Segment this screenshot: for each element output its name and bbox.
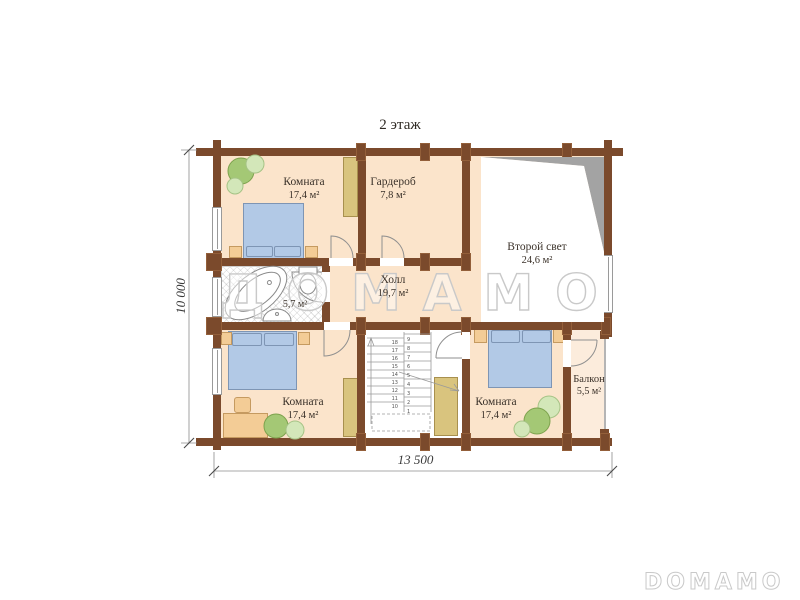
room-area: 17,4 м² (436, 409, 556, 422)
nightstand (229, 246, 242, 258)
wall-bottom (196, 438, 612, 446)
log-stub (420, 143, 430, 161)
room-area: 5,7 м² (260, 298, 330, 311)
door-opening (563, 340, 571, 367)
floor-plan-canvas: 2 этаж (0, 0, 800, 600)
room-name: Комната (436, 396, 556, 409)
nightstand (298, 332, 310, 345)
room-name: Второй свет (477, 241, 597, 254)
door-opening (462, 332, 470, 359)
pillow (522, 330, 551, 343)
door-opening (324, 322, 350, 330)
room-label-hall: Холл 19,7 м² (333, 274, 453, 300)
wall-bedroom-wardrobe (358, 156, 366, 258)
log-stub (356, 143, 366, 161)
wall-top (196, 148, 623, 156)
log-stub (562, 143, 572, 161)
page-title: 2 этаж (340, 117, 460, 134)
pillow (274, 246, 301, 257)
room-name: Балкон (557, 374, 621, 386)
room-label-bathroom: 5,7 м² (260, 298, 330, 311)
nightstand (221, 332, 232, 345)
wall-middle-lower (213, 322, 612, 330)
pillow (264, 333, 294, 346)
room-area: 17,4 м² (243, 409, 363, 422)
pillow (246, 246, 273, 257)
room-area: 24,6 м² (477, 254, 597, 267)
room-area: 19,7 м² (333, 287, 453, 300)
room-label-balcony: Балкон 5,5 м² (557, 374, 621, 398)
window-pane (217, 350, 218, 393)
log-stub (600, 433, 610, 451)
log-stub (420, 433, 430, 451)
log-stub (562, 433, 572, 451)
window-pane (217, 279, 218, 315)
window-pane (217, 209, 218, 249)
room-area: 5,5 м² (557, 386, 621, 398)
wall-wardrobe-secondlight (462, 156, 470, 258)
window (212, 207, 222, 251)
room-label-wardrobe: Гардероб 7,8 м² (333, 176, 453, 202)
room-area: 7,8 м² (333, 189, 453, 202)
room-name: Комната (243, 396, 363, 409)
watermark-corner: DOMAMO (644, 570, 784, 595)
room-label-bottom-left: Комната 17,4 м² (243, 396, 363, 422)
log-stub (461, 143, 471, 161)
nightstand (305, 246, 318, 258)
room-label-bottom-middle: Комната 17,4 м² (436, 396, 556, 422)
nightstand (474, 329, 487, 343)
window (212, 348, 222, 395)
log-stub (461, 433, 471, 451)
room-name: Гардероб (333, 176, 453, 189)
pillow (232, 333, 262, 346)
dimension-label-vertical: 10 000 (173, 264, 189, 328)
room-label-second-light: Второй свет 24,6 м² (477, 241, 597, 267)
pillow (491, 330, 520, 343)
log-stub (356, 433, 366, 451)
dimension-label-horizontal: 13 500 (368, 452, 463, 468)
room-name: Холл (333, 274, 453, 287)
